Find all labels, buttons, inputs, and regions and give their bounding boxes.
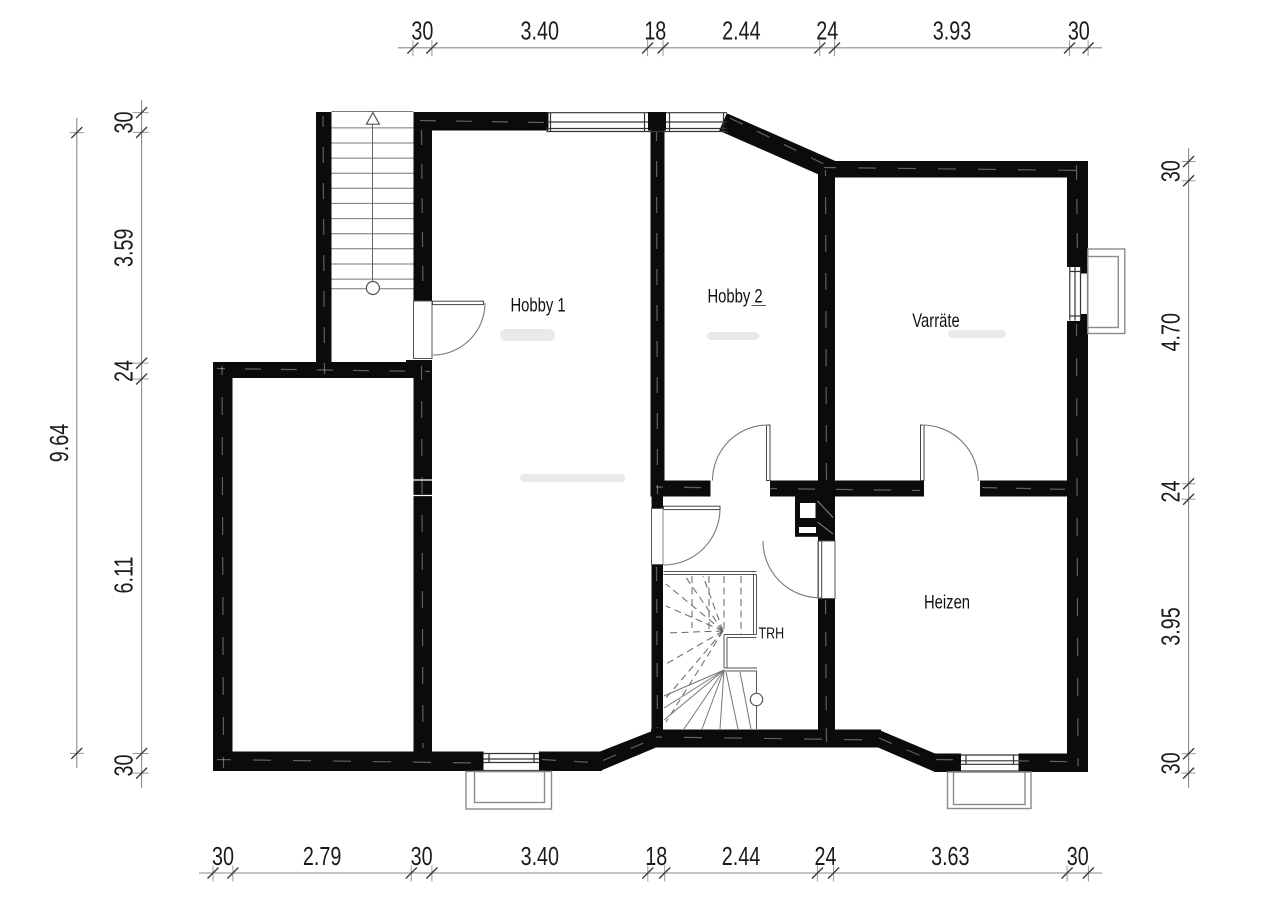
svg-text:3.40: 3.40 bbox=[520, 16, 558, 45]
svg-text:3.63: 3.63 bbox=[931, 841, 969, 870]
svg-text:30: 30 bbox=[109, 112, 138, 134]
svg-text:24: 24 bbox=[816, 16, 838, 45]
svg-text:3.93: 3.93 bbox=[933, 16, 971, 45]
svg-text:30: 30 bbox=[109, 755, 138, 777]
svg-text:30: 30 bbox=[212, 841, 234, 870]
svg-text:24: 24 bbox=[1156, 480, 1185, 502]
svg-text:3.40: 3.40 bbox=[521, 841, 559, 870]
svg-text:9.64: 9.64 bbox=[44, 424, 73, 463]
svg-text:2.79: 2.79 bbox=[303, 841, 341, 870]
svg-text:3.95: 3.95 bbox=[1156, 607, 1185, 645]
svg-text:Hobby 1: Hobby 1 bbox=[510, 295, 565, 316]
svg-text:2.44: 2.44 bbox=[722, 16, 761, 45]
svg-text:18: 18 bbox=[644, 16, 666, 45]
svg-text:6.11: 6.11 bbox=[109, 557, 138, 594]
svg-text:24: 24 bbox=[815, 841, 837, 870]
svg-text:2.44: 2.44 bbox=[722, 841, 761, 870]
svg-text:30: 30 bbox=[1068, 16, 1090, 45]
svg-text:30: 30 bbox=[1067, 841, 1089, 870]
svg-text:4.70: 4.70 bbox=[1156, 313, 1185, 351]
svg-text:Hobby 2: Hobby 2 bbox=[707, 286, 762, 307]
svg-text:Varräte: Varräte bbox=[912, 310, 959, 331]
svg-text:30: 30 bbox=[1156, 752, 1185, 774]
svg-text:30: 30 bbox=[1156, 160, 1185, 182]
svg-text:3.59: 3.59 bbox=[109, 229, 138, 267]
svg-text:24: 24 bbox=[109, 360, 138, 382]
svg-text:30: 30 bbox=[411, 841, 433, 870]
svg-text:Heizen: Heizen bbox=[924, 592, 970, 613]
svg-text:30: 30 bbox=[411, 16, 433, 45]
svg-text:TRH: TRH bbox=[759, 625, 785, 643]
svg-text:18: 18 bbox=[645, 841, 667, 870]
